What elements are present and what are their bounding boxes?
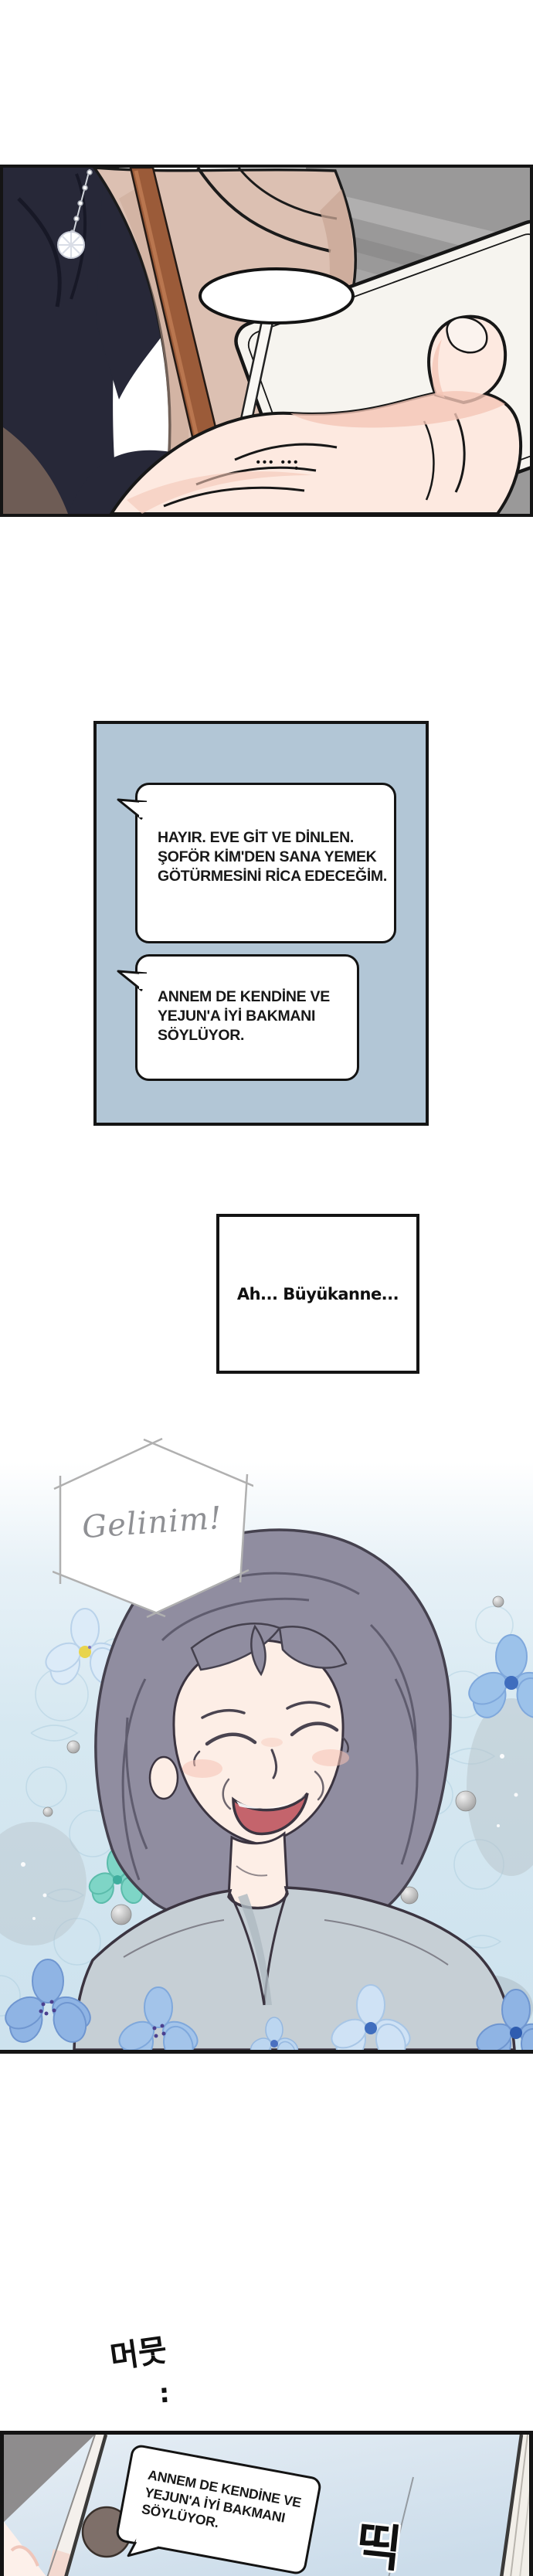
sfx-beep-text: 띡 [353, 2506, 406, 2576]
ellipsis-text: ••• ••• [256, 456, 300, 469]
chat-bubble-2: ANNEM DE KENDİNE VE YEJUN'A İYİ BAKMANI … [135, 954, 359, 1081]
webtoon-page: ••• ••• • HAYIR. EVE GİT VE DİNLEN. ŞOFÖ… [0, 0, 533, 2576]
panel-holding-tablet: ••• ••• • [0, 165, 533, 517]
neck [229, 1833, 287, 1908]
caption-box: Ah... Büyükanne... [216, 1214, 419, 1374]
shout-bubble: Gelinim! [53, 1437, 253, 1623]
sfx-hesitate-dots: : [158, 2378, 171, 2410]
chat-bubble-1: HAYIR. EVE GİT VE DİNLEN. ŞOFÖR KİM'DEN … [135, 783, 396, 943]
bubble-tail-icon [116, 797, 148, 824]
chat-bubble-1-text: HAYIR. EVE GİT VE DİNLEN. ŞOFÖR KİM'DEN … [137, 785, 394, 886]
speech-ellipse [200, 269, 353, 323]
silence-speech-bubble: ••• ••• • [202, 436, 355, 488]
caption-text: Ah... Büyükanne... [237, 1285, 399, 1303]
ear [150, 1757, 178, 1799]
panel-chat-messages: HAYIR. EVE GİT VE DİNLEN. ŞOFÖR KİM'DEN … [93, 721, 429, 1126]
chat-bubble-2-text: ANNEM DE KENDİNE VE YEJUN'A İYİ BAKMANI … [137, 957, 357, 1045]
ellipsis-extra-dot: • [294, 462, 298, 475]
bubble-tail-icon [116, 969, 148, 995]
sfx-hesitate-text: 머뭇 [107, 2325, 169, 2377]
